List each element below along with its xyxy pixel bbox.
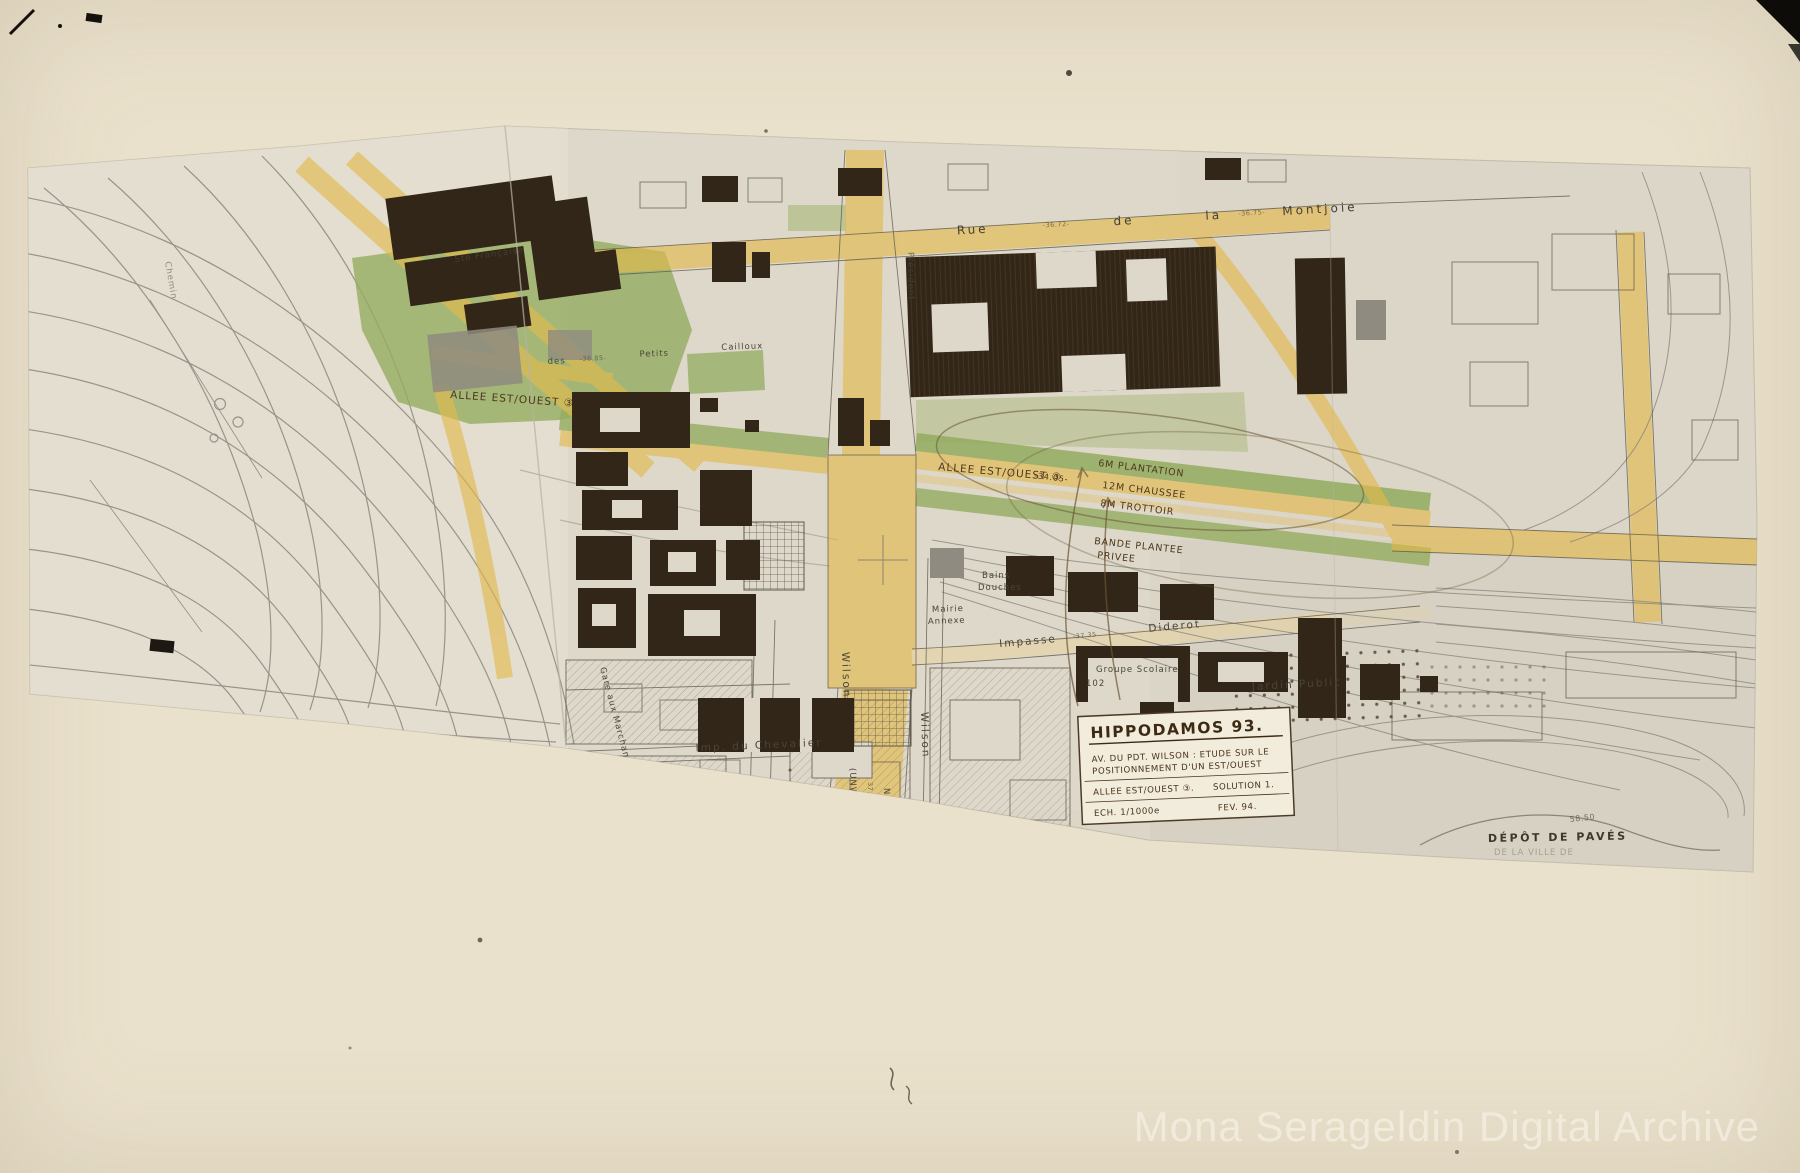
street-label-nde: N.De	[881, 788, 891, 813]
street-label-la: la	[1205, 208, 1222, 223]
depot-de-paves-label: DÉPÔT DE PAVÉS	[1488, 830, 1628, 845]
street-label-de: de	[1113, 213, 1135, 228]
bains-douches-label: Bains	[982, 571, 1010, 581]
street-label-des: des	[548, 356, 566, 367]
plan-drawing: Sté Française	[0, 0, 1800, 1173]
street-label-rue: Rue	[956, 222, 989, 238]
bains-douches-label: Douches	[978, 583, 1022, 593]
groupe-scolaire-number: 102	[1086, 679, 1105, 689]
street-label-wilson: Wilson	[918, 712, 932, 759]
groupe-scolaire-label: Groupe Scolaire	[1096, 665, 1179, 675]
elevation-label: -36.75-	[1238, 208, 1265, 218]
elevation-label: -37.25-	[726, 790, 753, 798]
street-label-president: Président	[905, 252, 917, 301]
elevation-label: -36.85-	[579, 354, 606, 363]
street-label-wilson: Wilson	[839, 652, 853, 699]
mairie-annexe-label: Annexe	[928, 616, 966, 627]
mairie-annexe-label: Mairie	[932, 604, 964, 615]
archive-watermark: Mona Serageldin Digital Archive	[1134, 1103, 1760, 1151]
elevation-label: -36.72-	[1042, 220, 1069, 230]
grey-building	[427, 325, 523, 392]
street-label-cailloux: Cailloux	[721, 341, 763, 352]
rail-shed-block	[149, 639, 174, 653]
street-label-petits: Petits	[639, 349, 669, 360]
street-label-unwin: (UNWIN)	[847, 768, 858, 812]
photo-corner-marks	[10, 0, 1800, 62]
title-card: HIPPODAMOS 93. AV. DU PDT. WILSON : ETUD…	[1078, 707, 1295, 824]
mega-block-center-right	[906, 247, 1221, 398]
card-date: FEV. 94.	[1218, 802, 1257, 814]
depot-second-line: DE LA VILLE DE	[1494, 848, 1574, 858]
photo-of-urban-plan: Sté Française	[0, 0, 1800, 1173]
